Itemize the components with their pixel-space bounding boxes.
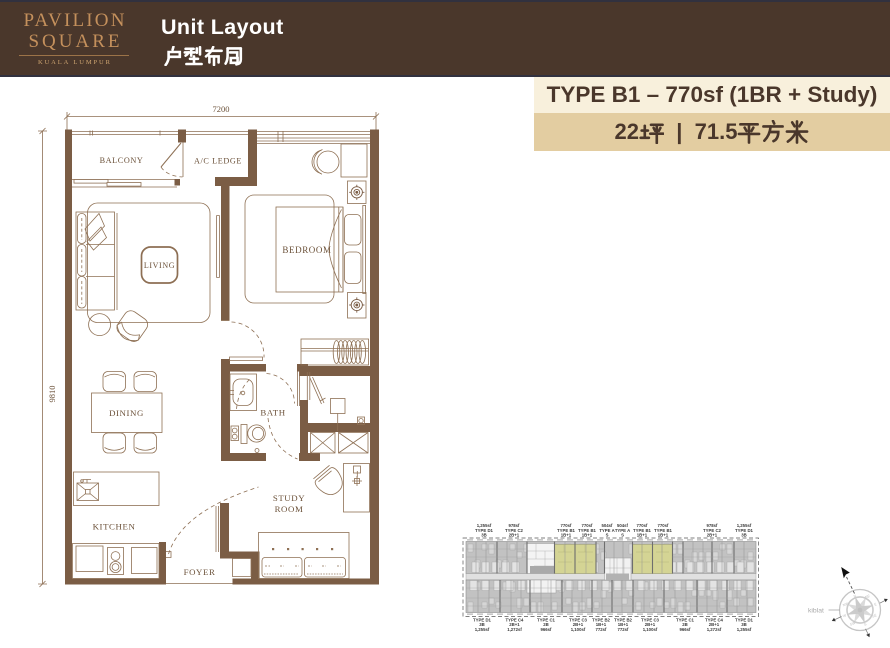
svg-text:SE: SE [871,613,877,619]
svg-text:NE: NE [864,594,871,600]
svg-text:772sf: 772sf [596,627,608,632]
svg-text:ROOM: ROOM [275,504,304,514]
svg-text:kiblat: kiblat [808,608,824,615]
svg-text:772sf: 772sf [618,627,630,632]
svg-text:1B+1: 1B+1 [582,533,593,538]
svg-text:W: W [842,613,847,618]
svg-text:966sf: 966sf [680,627,692,632]
svg-text:FOYER: FOYER [184,567,216,577]
svg-text:3B: 3B [741,533,747,538]
svg-text:1B+1: 1B+1 [658,533,669,538]
svg-text:STUDY: STUDY [273,493,305,503]
svg-text:9810: 9810 [47,386,57,403]
svg-text:2B+1: 2B+1 [509,533,520,538]
svg-text:3B: 3B [481,533,487,538]
svg-text:BEDROOM: BEDROOM [282,245,331,255]
svg-text:2B+1: 2B+1 [707,533,718,538]
svg-text:1,255sf: 1,255sf [475,627,490,632]
svg-text:1,255sf: 1,255sf [737,627,752,632]
svg-text:KITCHEN: KITCHEN [93,522,136,532]
svg-text:S: S [621,533,624,538]
svg-text:LIVING: LIVING [144,261,175,270]
svg-text:E: E [874,602,878,607]
svg-text:A/C LEDGE: A/C LEDGE [194,157,242,166]
svg-text:1,272sf: 1,272sf [507,627,522,632]
svg-text:1B+1: 1B+1 [561,533,572,538]
svg-text:S: S [863,622,867,627]
svg-text:1,100sf: 1,100sf [571,627,586,632]
svg-text:966sf: 966sf [541,627,553,632]
svg-text:DINING: DINING [109,408,144,418]
svg-text:1B+1: 1B+1 [637,533,648,538]
svg-text:1,100sf: 1,100sf [643,627,658,632]
svg-text:BALCONY: BALCONY [100,156,144,165]
svg-text:BATH: BATH [260,408,285,418]
svg-text:1,272sf: 1,272sf [707,627,722,632]
svg-text:7200: 7200 [213,104,230,114]
svg-text:S: S [606,533,609,538]
